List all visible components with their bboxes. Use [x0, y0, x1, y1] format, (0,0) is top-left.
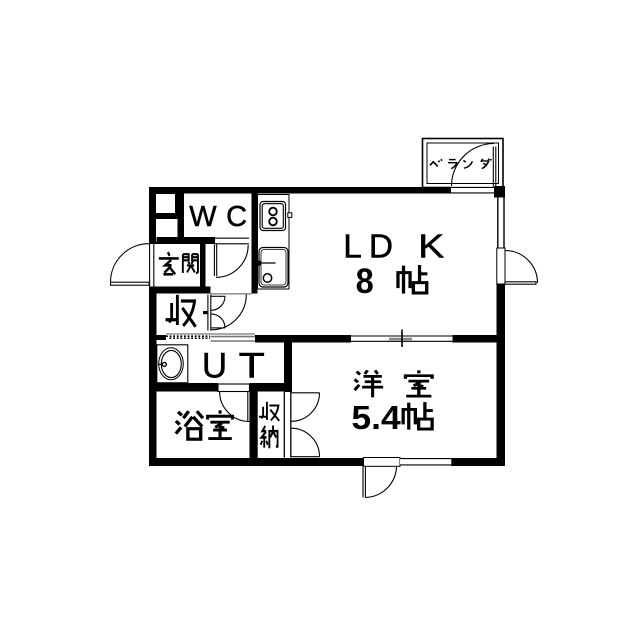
svg-text:LD: LD — [343, 228, 393, 265]
svg-text:8: 8 — [356, 262, 374, 301]
svg-text:T: T — [239, 346, 265, 385]
svg-text:U: U — [202, 346, 227, 385]
svg-text:K: K — [418, 228, 444, 265]
svg-text:5.4: 5.4 — [351, 400, 401, 437]
